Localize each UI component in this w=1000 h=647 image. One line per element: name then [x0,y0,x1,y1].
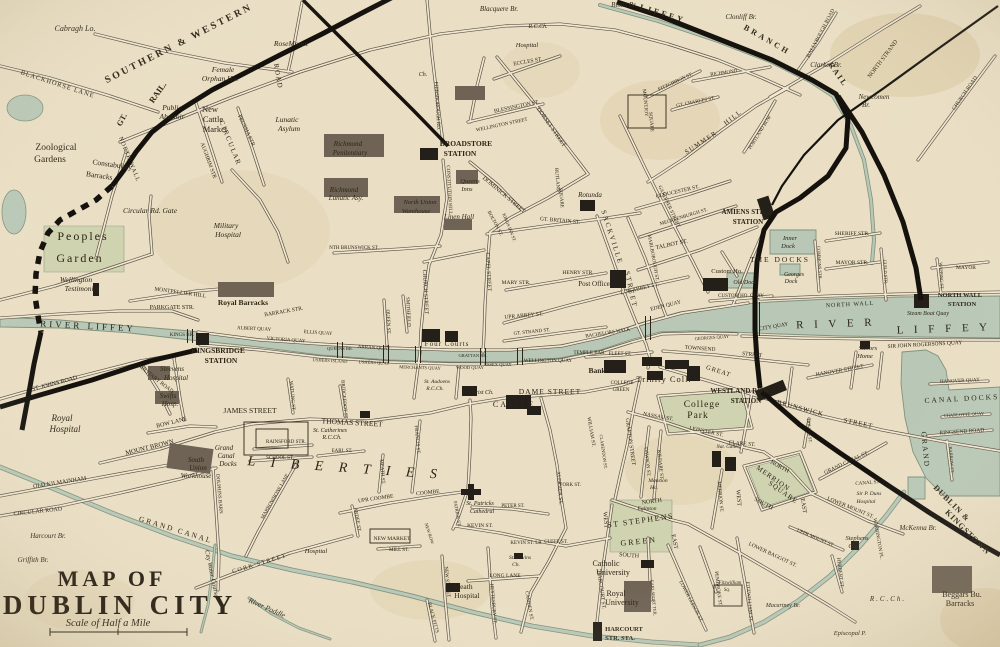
map-label: Harcourt Br. [29,532,66,540]
map-label: NTH BRUNSWICK ST. [329,246,379,251]
landmark-building [593,622,602,641]
map-label: R.C.Ch. [425,386,444,392]
map-label: Nat. Gallery [716,445,743,450]
map-label: Lunatic Asy. [328,194,364,202]
map-label: Orphan Ho. [202,74,238,83]
map-label: CUSTOM HO. QUAY [718,294,764,299]
map-label: St. Kevins [509,555,531,561]
map-label: STATION [205,356,238,365]
map-label: Public [161,103,182,112]
paper-stain [500,42,580,98]
map-label: Canal [217,452,234,460]
map-label: Zoological [35,143,77,153]
map-label: Richmond [333,140,363,148]
map-label: Custom Ho. [711,268,743,275]
map-label: Sailors [859,345,878,352]
map-label: Christ Ch. [468,390,493,396]
institution-building [218,282,274,297]
map-label: Hospital [214,230,241,239]
map-label: PARKGATE STR. [150,305,195,311]
map-label: KEVIN ST. [467,523,493,529]
map-label: Trinity Coll. [636,374,691,384]
landmark-building [420,148,438,160]
map-label: Peoples [57,229,108,243]
map-label: Testimonial [65,284,100,293]
map-label: North Union [402,199,436,206]
inner-dock [770,230,816,254]
map-label: Hospital [163,374,188,382]
map-label: EARL ST. [332,449,353,454]
map-label: Meath [453,582,472,591]
map-label: STR. STA. [605,635,635,642]
institution-building [932,566,972,593]
institution-building [455,86,485,100]
map-label: MAYOR [956,265,976,271]
map-label: STATION [731,397,761,405]
map-label: Barracks [946,599,974,608]
map-label: Royal [51,413,73,423]
map-label: Beggars Bu. [942,590,982,599]
map-label: NEW MARKET [373,536,411,542]
map-label: Fitzwilliam [718,581,742,586]
landmark-building [580,200,595,211]
map-label: Dock [784,279,798,285]
map-label: Rotunda [577,191,602,199]
map-label: AMIENS STR. [721,208,766,216]
map-label: STATION [444,149,477,158]
landmark-building [712,451,721,467]
map-label: GRATTAN BR. [459,353,488,358]
landmark-building [360,411,370,418]
map-label: Lunatic [275,115,300,124]
map-label: Inner [782,235,798,242]
map-label: Garden [56,251,103,265]
map-label: Docks [218,460,237,468]
map-label: Military [213,221,239,230]
map-label: Royal Barracks [218,298,268,307]
map-label: LONG LANE [489,573,521,579]
map-label: Hospital [515,42,539,49]
map-label: Inns [460,186,473,193]
map-label: THE DOCKS [750,255,810,264]
park-pond [2,190,26,234]
map-label: Steevens [160,365,184,373]
map-label: Bank [588,366,606,375]
map-label: Richmond [329,186,359,194]
map-label: MAYOR STR. [836,260,869,266]
landmark-building [642,357,662,366]
map-label: Cathedral [470,509,495,515]
institution-building [624,581,651,612]
map-label: STATION [733,218,763,226]
map-label: Hospital [48,424,81,434]
map-label: Eglinton [637,506,657,512]
map-label: ESSEX QUAY [484,362,512,367]
map-label: Wellington [60,275,92,284]
zoo-pond [7,95,43,121]
map-label: Workhouse [181,472,212,480]
map-label: Catholic [592,559,620,568]
map-label: New [202,104,219,114]
map-label: Grand [215,444,234,452]
landmark-building [604,360,626,373]
map-label: JAMES STREET [223,406,277,415]
map-label: Binns Br. [611,1,637,9]
map-label: Ho. [649,485,658,491]
map-label: Warehouse [402,208,431,215]
map-label: Georges [784,272,805,278]
map-label: FLEET ST. [609,352,632,357]
map-label: St. Patricks [466,501,494,507]
map-label: R.C.Ch. [321,435,341,441]
map-label: Park [687,411,708,421]
map-label: GREEN [613,388,630,393]
landmark-building [725,457,736,471]
map-label: Dock [780,243,795,250]
map-label: KINGSBRIDGE [191,346,245,355]
map-label: St. Catherines [313,428,348,434]
map-label: Four Courts [425,340,470,348]
map-label: QUEENS BR. [327,346,353,351]
map-label: RoseMount [273,39,309,48]
map-label: Home [856,353,873,360]
map-label: Hospital [304,548,328,555]
map-label: Stephens [845,535,869,542]
map-label: WOOD QUAY [456,365,484,370]
map-label: Clonliff Br. [725,13,756,21]
map-label: Ch. [512,562,520,568]
map-label: SHERIFF STR. [835,231,870,237]
map-label: PETER ST. [501,504,524,509]
map-label: Clarkes Br. [810,61,842,69]
map-label: BROADSTORE [440,139,492,148]
map-label: Circular Rd. Gate [123,206,178,215]
map-label: R.C.Ch. [527,24,547,30]
map-label: Mansion [647,478,668,484]
map-label: Sq. [724,588,730,593]
map-label: STATION [948,301,977,308]
landmark-building [703,278,728,291]
map-title-line2: DUBLIN CITY [3,590,237,620]
map-label: YORK ST. [559,483,581,488]
map-label: Female [211,65,235,74]
map-of-dublin-city: Cabragh Lo.BLACKHORSE LANESOUTHERN & WES… [0,0,1000,647]
map-label: South [188,456,204,464]
map-label: RAINSFORD STR. [266,440,306,445]
paper-stain [830,13,980,97]
map-label: Union [189,464,207,472]
map-label: Hosp. [161,400,179,408]
map-label: R.C.Ch. [869,595,906,603]
landmark-building [196,333,209,345]
map-label: Penitentiary [332,149,368,157]
map-label: Hospital [454,591,479,600]
map-label: Abattoir [158,112,184,121]
map-label: Newcomen [858,93,890,101]
map-label: Blacquere Br. [480,5,518,13]
map-label: KEVIN ST. LR [510,541,542,546]
map-label: HENRY STR. [562,270,594,276]
map-label: Steam Boat Quay [907,311,949,317]
map-label: NORTH WALL [938,292,983,299]
map-label: Asylum [277,124,301,133]
map-label: College [684,400,721,410]
map-label: Episcopal P. [833,630,867,637]
map-label: TEMPLE BAR [574,351,606,356]
map-label: Hospital [856,499,876,505]
map-label: McKenna Br. [899,524,937,532]
map-label: Macartney Br. [765,603,800,609]
map-label: COLLEGE [611,381,634,386]
map-label: KINGS BR. [170,333,194,338]
dublin-map-canvas: Cabragh Lo.BLACKHORSE LANESOUTHERN & WES… [0,0,1000,647]
marquis-basin [908,477,925,499]
map-label: WELLINGTON QUAY [524,359,573,364]
map-label: WESTLAND ROW [710,387,769,395]
map-label: Br. [862,101,870,109]
map-label: CASTLE [493,400,535,409]
map-label: Sir P. Duns [857,491,882,497]
map-label: Swifts [160,392,177,400]
map-label: Ch. [419,72,428,78]
landmark-building [665,360,689,369]
scale-label: Scale of Half a Mile [66,618,151,629]
map-label: Post Office [578,280,610,288]
map-title-line1: MAP OF [58,566,167,591]
map-label: Griffith Br. [18,556,49,564]
map-label: HARCOURT [605,626,643,633]
map-label: MILL ST. [389,548,409,553]
map-label: University [605,598,639,607]
map-label: Ch. [848,543,858,550]
map-label: Old Dock [733,280,756,286]
map-label: University [596,568,630,577]
map-label: St. Audoens [424,379,450,385]
map-label: Queens [460,178,480,185]
landmark-building [468,484,474,500]
landmark-building [641,560,654,568]
map-label: Gardens [34,155,66,165]
map-label: MARY STR. [502,280,531,286]
map-label: DAME STREET [519,387,581,396]
map-label: Cabragh Lo. [55,24,96,33]
map-label: Royal [606,589,626,598]
map-label: CUFFE ST. [544,540,568,545]
